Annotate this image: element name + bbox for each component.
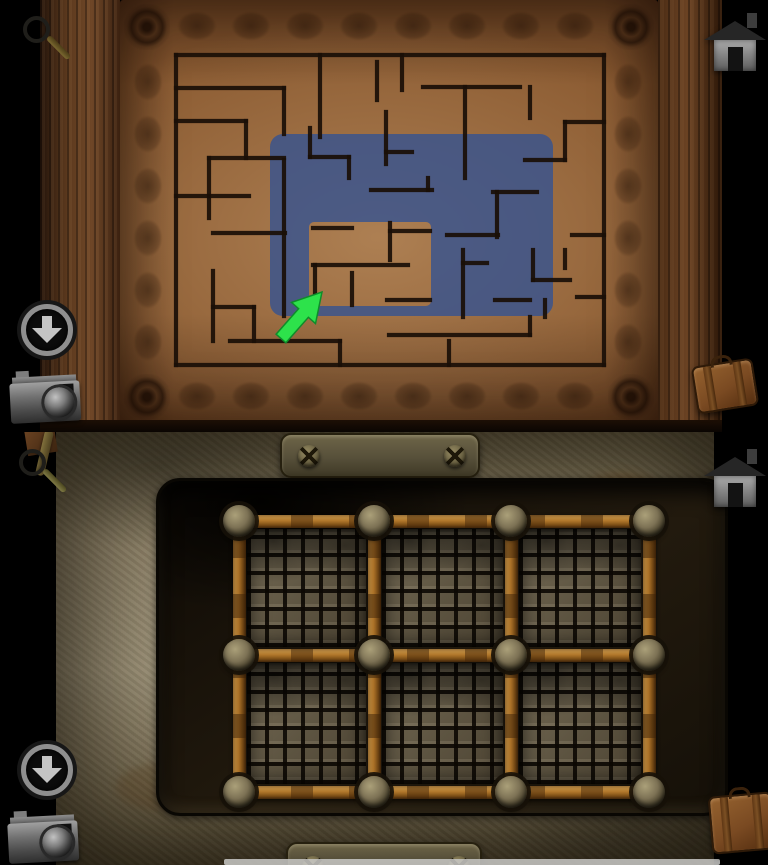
home-roof bbox=[704, 21, 766, 40]
suitcase-strap bbox=[703, 366, 718, 411]
mesh-panel bbox=[519, 663, 641, 784]
scene-grate-wall bbox=[0, 432, 768, 865]
home-door bbox=[728, 47, 743, 71]
suitcase-strap bbox=[720, 797, 733, 851]
screw bbox=[298, 445, 320, 467]
mesh-panel bbox=[247, 663, 366, 784]
camera-icon[interactable] bbox=[9, 366, 84, 428]
home-icon[interactable] bbox=[704, 446, 766, 510]
grate-bolt bbox=[633, 505, 665, 537]
carved-rosette bbox=[608, 374, 654, 420]
maze-board[interactable] bbox=[120, 0, 658, 424]
carved-ornament-band-left bbox=[128, 56, 170, 368]
download-arrow-head bbox=[32, 768, 62, 783]
stone-wall bbox=[56, 432, 714, 865]
carved-ornament-band-bottom bbox=[170, 376, 610, 418]
grate-recess[interactable] bbox=[156, 478, 728, 816]
suitcase-strap bbox=[732, 361, 747, 406]
carved-ornament-band-top bbox=[170, 6, 610, 48]
suitcase-icon[interactable] bbox=[708, 791, 768, 854]
screw bbox=[444, 445, 466, 467]
grate-bolt bbox=[495, 776, 527, 808]
grate-bolt bbox=[358, 505, 390, 537]
camera-icon[interactable] bbox=[7, 806, 82, 865]
home-icon[interactable] bbox=[704, 10, 766, 74]
grate-bar-horizontal bbox=[233, 649, 655, 662]
carved-rosette bbox=[124, 374, 170, 420]
download-arrow-head bbox=[32, 328, 62, 343]
download-icon[interactable] bbox=[21, 744, 73, 796]
grate-bolt bbox=[495, 505, 527, 537]
mesh-panel bbox=[382, 529, 503, 647]
metal-plate-top bbox=[280, 433, 480, 478]
suitcase-icon[interactable] bbox=[691, 357, 760, 414]
home-door bbox=[728, 483, 743, 507]
magnifier-icon[interactable] bbox=[19, 449, 53, 509]
mesh-panel bbox=[382, 663, 503, 784]
grate-bolt bbox=[633, 639, 665, 671]
download-icon[interactable] bbox=[21, 304, 73, 356]
grate-bolt bbox=[223, 776, 255, 808]
door-bottom-edge bbox=[40, 420, 722, 432]
grate-bar-horizontal bbox=[233, 786, 655, 799]
scene-maze-door bbox=[0, 0, 768, 432]
suitcase-strap bbox=[752, 794, 765, 848]
download-arrow-shaft bbox=[42, 316, 52, 328]
grate-bolt bbox=[495, 639, 527, 671]
home-roof bbox=[704, 457, 766, 476]
screenshot-root bbox=[0, 0, 768, 865]
magnifier-icon[interactable] bbox=[23, 16, 57, 76]
mesh-panel bbox=[519, 529, 641, 647]
carved-ornament-band-right bbox=[608, 56, 650, 368]
bottom-edge-highlight bbox=[224, 859, 720, 865]
carved-rosette bbox=[124, 4, 170, 50]
mesh-panel bbox=[247, 529, 366, 647]
grate-bolt bbox=[358, 776, 390, 808]
grate-bolt bbox=[358, 639, 390, 671]
grate-bolt bbox=[633, 776, 665, 808]
carved-rosette bbox=[608, 4, 654, 50]
grate-bar-horizontal bbox=[233, 515, 655, 528]
download-arrow-shaft bbox=[42, 756, 52, 768]
grate-bolt bbox=[223, 639, 255, 671]
grate-bolt bbox=[223, 505, 255, 537]
suitcase-handle bbox=[728, 786, 751, 799]
